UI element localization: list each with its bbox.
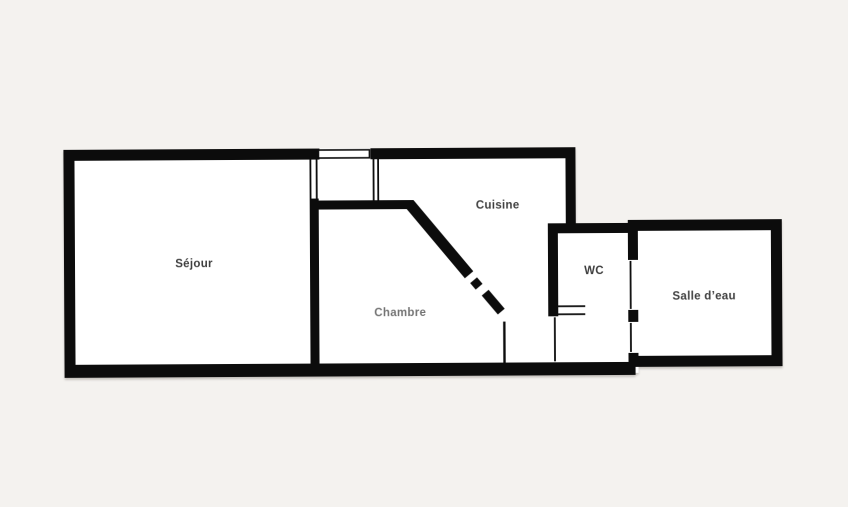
bathroom-right-wall	[771, 219, 783, 366]
top-wall-left-segment	[63, 149, 319, 161]
room-label-wc: WC	[584, 265, 604, 277]
top-wall-right-segment	[370, 147, 575, 159]
window-top-wall	[318, 150, 369, 158]
wc-left-wall	[548, 223, 558, 316]
wc-top-wall	[548, 223, 638, 233]
room-label-salle-deau: Salle d’eau	[672, 290, 735, 302]
main-block-floor	[63, 147, 576, 376]
room-label-sejour: Séjour	[175, 258, 213, 270]
sejour-partition-wall	[310, 199, 320, 377]
wc-block-floor	[548, 223, 639, 373]
room-label-chambre: Chambre	[374, 307, 426, 319]
bathroom-bottom-wall	[631, 355, 782, 367]
room-label-cuisine: Cuisine	[476, 199, 520, 211]
chambre-top-wall	[310, 200, 414, 210]
divider-wall-middle	[628, 310, 638, 322]
floorplan-canvas: Séjour Chambre Cuisine WC Salle d’eau	[0, 0, 848, 507]
floorplan-page: Séjour Chambre Cuisine WC Salle d’eau	[0, 0, 848, 507]
diagonal-wall-dash-1	[474, 280, 480, 287]
right-wall-main	[565, 147, 575, 226]
bathroom-top-wall	[628, 219, 782, 231]
left-wall	[63, 150, 75, 378]
floorplan: Séjour Chambre Cuisine WC Salle d’eau	[63, 146, 782, 378]
